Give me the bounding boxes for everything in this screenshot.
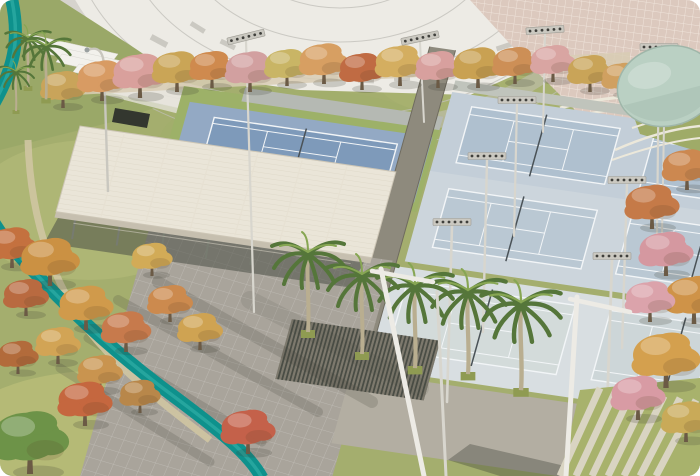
floodbar bbox=[608, 177, 646, 184]
floodbar bbox=[468, 153, 506, 160]
rendering-canvas bbox=[0, 0, 700, 476]
floodbar bbox=[433, 219, 471, 226]
floodbar bbox=[498, 97, 536, 104]
rendering-frame bbox=[0, 0, 700, 476]
floodbar bbox=[593, 253, 631, 260]
street-lamp-head bbox=[85, 48, 90, 53]
